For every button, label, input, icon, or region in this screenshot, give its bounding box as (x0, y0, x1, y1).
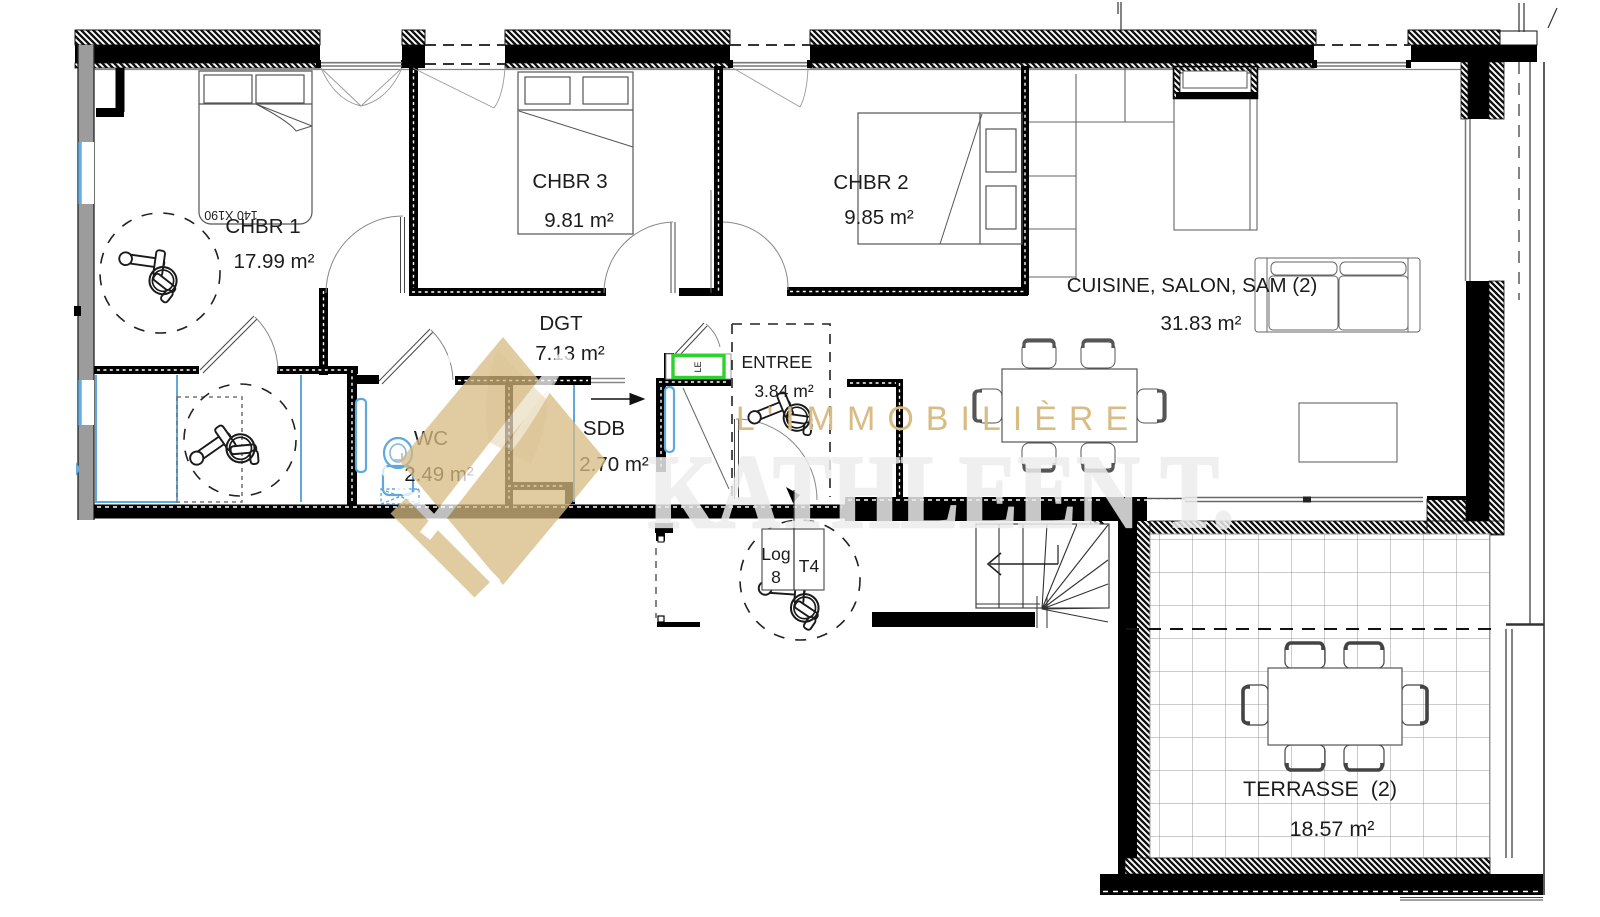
svg-text:31.83 m²: 31.83 m² (1161, 312, 1242, 335)
svg-text:CHBR 3: CHBR 3 (532, 170, 607, 193)
svg-text:CUISINE, SALON, SAM (2): CUISINE, SALON, SAM (2) (1067, 274, 1318, 297)
svg-text:SDB: SDB (583, 417, 625, 440)
svg-text:17.99 m²: 17.99 m² (234, 250, 315, 273)
svg-text:T4: T4 (799, 556, 820, 576)
svg-text:KATHLEEN T.: KATHLEEN T. (648, 434, 1235, 550)
svg-text:9.81 m²: 9.81 m² (544, 209, 614, 232)
svg-text:CHBR 1: CHBR 1 (225, 215, 300, 238)
svg-text:ENTREE: ENTREE (742, 352, 813, 372)
svg-text:DGT: DGT (539, 312, 583, 335)
svg-text:8: 8 (771, 567, 781, 587)
svg-text:CHBR 2: CHBR 2 (833, 171, 908, 194)
svg-text:TERRASSE (2): TERRASSE (2) (1243, 777, 1397, 801)
svg-text:L'IMMOBILIÈRE: L'IMMOBILIÈRE (736, 400, 1140, 438)
svg-text:LE: LE (693, 361, 703, 372)
svg-text:3.84 m²: 3.84 m² (754, 381, 813, 401)
svg-text:9.85 m²: 9.85 m² (844, 206, 914, 229)
svg-text:18.57 m²: 18.57 m² (1290, 817, 1375, 841)
svg-text:7.13 m²: 7.13 m² (535, 342, 605, 365)
